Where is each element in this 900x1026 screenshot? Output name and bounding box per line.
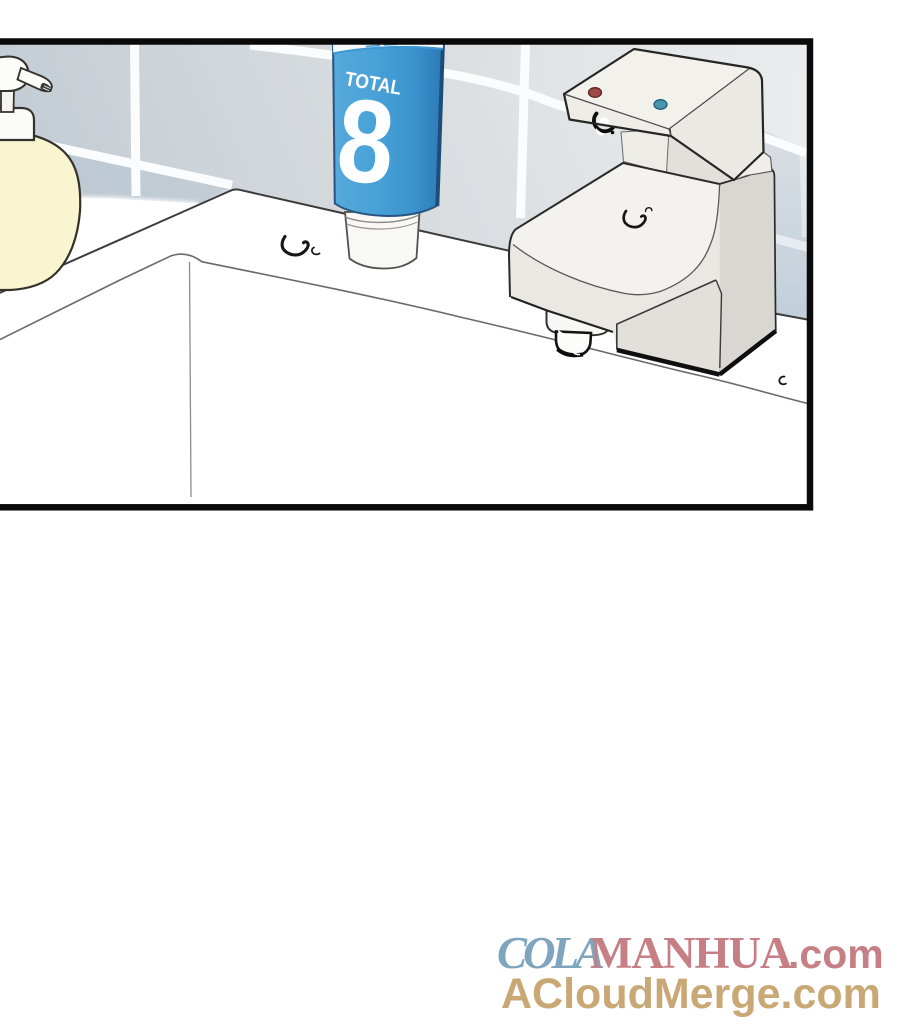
svg-text:8: 8 — [333, 74, 398, 210]
svg-text:ACloudMerge.com: ACloudMerge.com — [501, 970, 881, 1018]
